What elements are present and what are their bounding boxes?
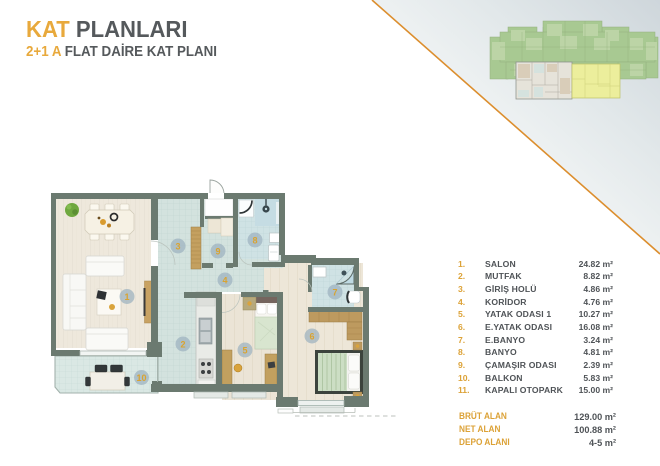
- svg-text:6: 6: [309, 332, 314, 342]
- svg-text:10: 10: [136, 373, 146, 383]
- svg-text:5: 5: [242, 346, 247, 356]
- svg-text:7: 7: [332, 288, 337, 298]
- svg-text:3: 3: [175, 242, 180, 252]
- svg-text:9: 9: [215, 247, 220, 257]
- svg-text:4: 4: [222, 276, 227, 286]
- svg-text:8: 8: [252, 236, 257, 246]
- svg-text:1: 1: [124, 292, 129, 302]
- svg-text:2: 2: [180, 340, 185, 350]
